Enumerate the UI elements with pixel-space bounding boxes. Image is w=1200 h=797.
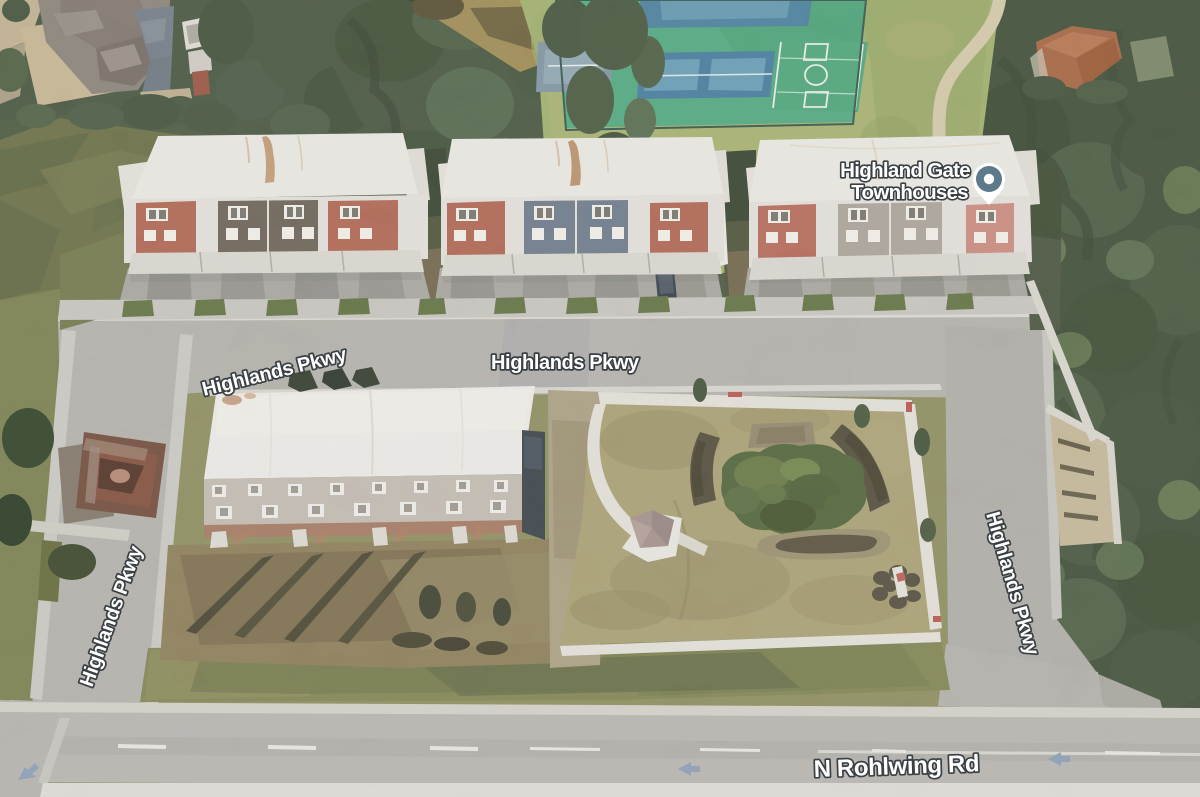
svg-text:Townhouses: Townhouses [851,181,968,204]
svg-text:N Rohlwing Rd: N Rohlwing Rd [813,750,979,783]
svg-text:Highland Gate: Highland Gate [840,159,970,182]
svg-text:Highlands Pkwy: Highlands Pkwy [491,352,640,374]
